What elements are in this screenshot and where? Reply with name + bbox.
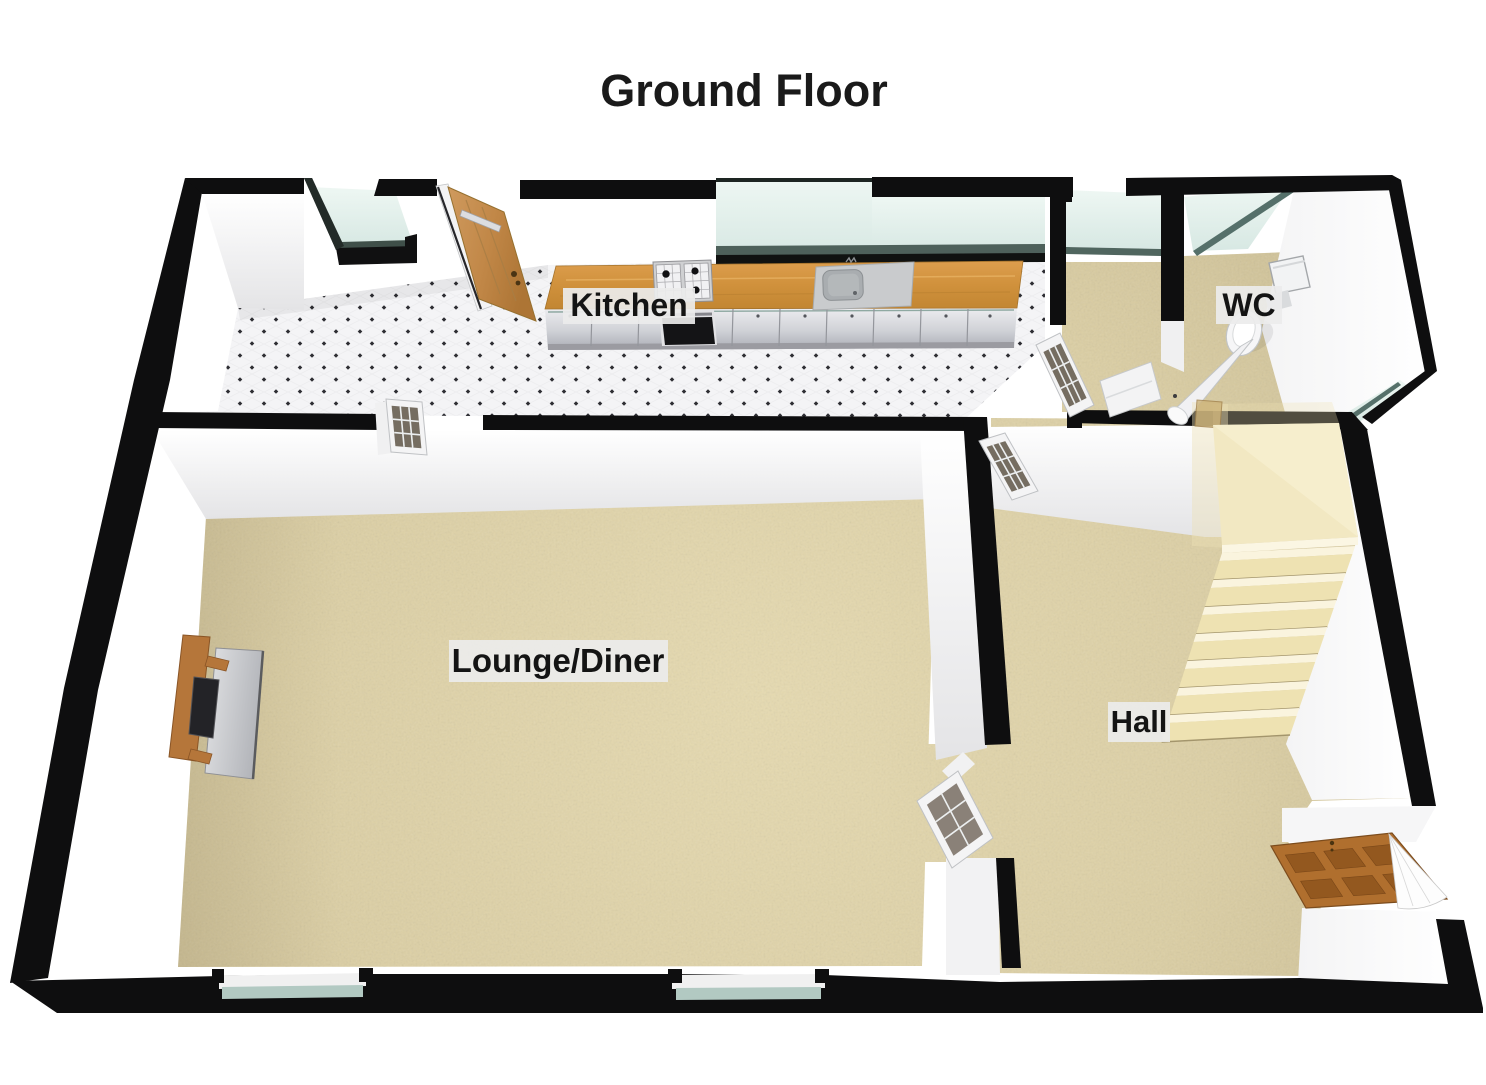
svg-text:Kitchen: Kitchen (570, 287, 687, 323)
svg-text:Hall: Hall (1111, 704, 1168, 739)
svg-text:WC: WC (1222, 287, 1275, 323)
svg-text:Ground Floor: Ground Floor (600, 65, 887, 116)
svg-text:Lounge/Diner: Lounge/Diner (452, 642, 665, 679)
